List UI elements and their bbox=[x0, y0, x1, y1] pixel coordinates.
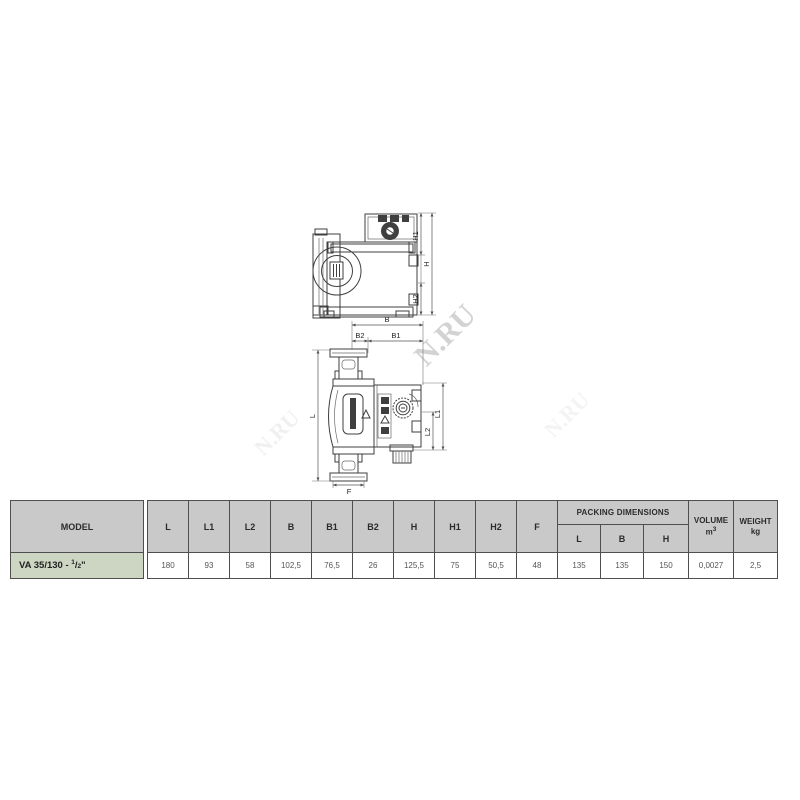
value-pack-b: 135 bbox=[601, 553, 644, 579]
value-l2: 58 bbox=[230, 553, 271, 579]
value-b2: 26 bbox=[353, 553, 394, 579]
pump-top-view: H1 H H2 bbox=[313, 213, 436, 318]
value-h: 125,5 bbox=[394, 553, 435, 579]
header-b: B bbox=[271, 501, 312, 553]
model-column-header: MODEL bbox=[11, 501, 144, 553]
value-b: 102,5 bbox=[271, 553, 312, 579]
header-l2: L2 bbox=[230, 501, 271, 553]
spec-table: MODEL L L1 L2 B B1 B2 H H1 H2 F PACKING … bbox=[10, 500, 778, 579]
value-b1: 76,5 bbox=[312, 553, 353, 579]
control-box bbox=[374, 385, 421, 447]
technical-drawing: N.RU N.RU N.RU bbox=[0, 0, 800, 800]
front-view-l1-l2-dimensions: L1 L2 bbox=[413, 383, 447, 450]
value-pack-l: 135 bbox=[558, 553, 601, 579]
packing-sub-l: L bbox=[558, 525, 601, 553]
value-l1: 93 bbox=[189, 553, 230, 579]
value-pack-h: 150 bbox=[644, 553, 689, 579]
value-volume: 0,0027 bbox=[689, 553, 734, 579]
dim-label-l2: L2 bbox=[423, 428, 432, 436]
watermark-echo-left: N.RU bbox=[249, 405, 304, 460]
value-h2: 50,5 bbox=[476, 553, 517, 579]
header-h2: H2 bbox=[476, 501, 517, 553]
model-name-cell: VA 35/130 - 1/2" bbox=[11, 553, 144, 579]
top-flange-circle bbox=[313, 247, 361, 295]
top-terminal-box bbox=[365, 214, 417, 242]
weight-label: WEIGHT bbox=[740, 517, 772, 526]
value-weight: 2,5 bbox=[734, 553, 778, 579]
value-h1: 75 bbox=[435, 553, 476, 579]
value-l: 180 bbox=[148, 553, 189, 579]
dim-label-l: L bbox=[308, 414, 317, 418]
top-view-dimensions: H1 H H2 bbox=[411, 213, 436, 315]
dim-label-h: H bbox=[422, 261, 431, 266]
dim-label-b: B bbox=[384, 315, 389, 324]
header-f: F bbox=[517, 501, 558, 553]
volume-header: VOLUME m3 bbox=[689, 501, 734, 553]
watermark-text: N.RU bbox=[408, 298, 483, 373]
packing-dimensions-header: PACKING DIMENSIONS bbox=[558, 501, 689, 525]
watermark-echo-right: N.RU bbox=[539, 387, 594, 442]
watermark: N.RU N.RU N.RU bbox=[249, 298, 594, 460]
dim-label-b1: B1 bbox=[391, 331, 400, 340]
dim-label-h2: H2 bbox=[411, 294, 420, 304]
packing-sub-b: B bbox=[601, 525, 644, 553]
value-f: 48 bbox=[517, 553, 558, 579]
header-h: H bbox=[394, 501, 435, 553]
dim-label-l1: L1 bbox=[433, 410, 442, 418]
volute-body bbox=[329, 386, 371, 447]
datasheet-page: N.RU N.RU N.RU bbox=[0, 0, 800, 800]
volume-unit: m bbox=[706, 527, 713, 536]
cable-gland-box bbox=[390, 445, 413, 463]
header-l1: L1 bbox=[189, 501, 230, 553]
front-view-f-dimension: F bbox=[333, 481, 364, 496]
weight-header: WEIGHT kg bbox=[734, 501, 778, 553]
dim-label-b2: B2 bbox=[355, 331, 364, 340]
weight-unit: kg bbox=[751, 527, 760, 536]
dim-label-h1: H1 bbox=[411, 231, 420, 241]
dim-label-f: F bbox=[347, 487, 352, 496]
front-view-l-dimension: L bbox=[308, 350, 331, 481]
volume-label: VOLUME bbox=[694, 516, 728, 525]
header-b2: B2 bbox=[353, 501, 394, 553]
packing-sub-h: H bbox=[644, 525, 689, 553]
header-b1: B1 bbox=[312, 501, 353, 553]
header-h1: H1 bbox=[435, 501, 476, 553]
header-l: L bbox=[148, 501, 189, 553]
